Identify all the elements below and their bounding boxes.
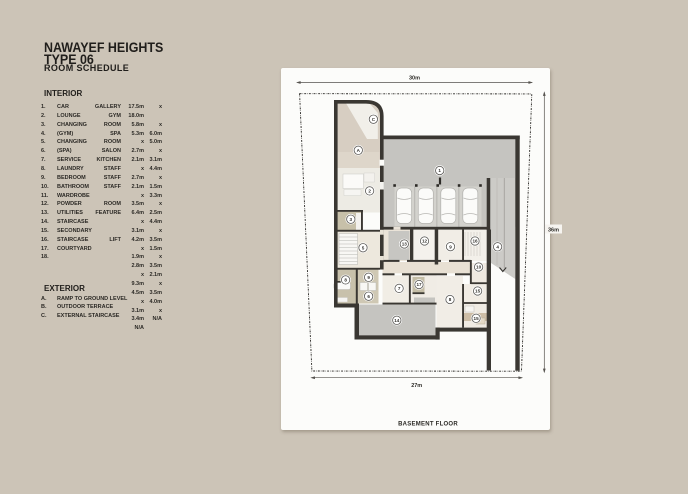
svg-text:2: 2 xyxy=(368,189,371,194)
svg-text:15: 15 xyxy=(474,316,480,321)
svg-text:10: 10 xyxy=(476,265,482,270)
svg-text:16: 16 xyxy=(472,239,478,244)
svg-text:1: 1 xyxy=(438,168,441,173)
svg-text:5: 5 xyxy=(362,245,365,250)
svg-text:13: 13 xyxy=(402,242,408,247)
svg-text:6: 6 xyxy=(367,294,370,299)
svg-text:3: 3 xyxy=(350,217,353,222)
svg-text:4: 4 xyxy=(496,245,499,250)
svg-text:36m: 36m xyxy=(548,227,559,233)
svg-text:15: 15 xyxy=(475,289,481,294)
svg-text:27m: 27m xyxy=(411,383,422,389)
svg-text:12: 12 xyxy=(422,239,428,244)
svg-text:14: 14 xyxy=(394,318,400,323)
svg-text:7: 7 xyxy=(398,286,401,291)
svg-text:17: 17 xyxy=(416,282,422,287)
svg-text:8: 8 xyxy=(449,297,452,302)
svg-text:9: 9 xyxy=(367,275,370,280)
svg-text:9: 9 xyxy=(449,244,452,249)
svg-text:BASEMENT FLOOR: BASEMENT FLOOR xyxy=(398,421,458,427)
svg-text:30m: 30m xyxy=(409,75,420,81)
svg-text:8: 8 xyxy=(344,278,347,283)
